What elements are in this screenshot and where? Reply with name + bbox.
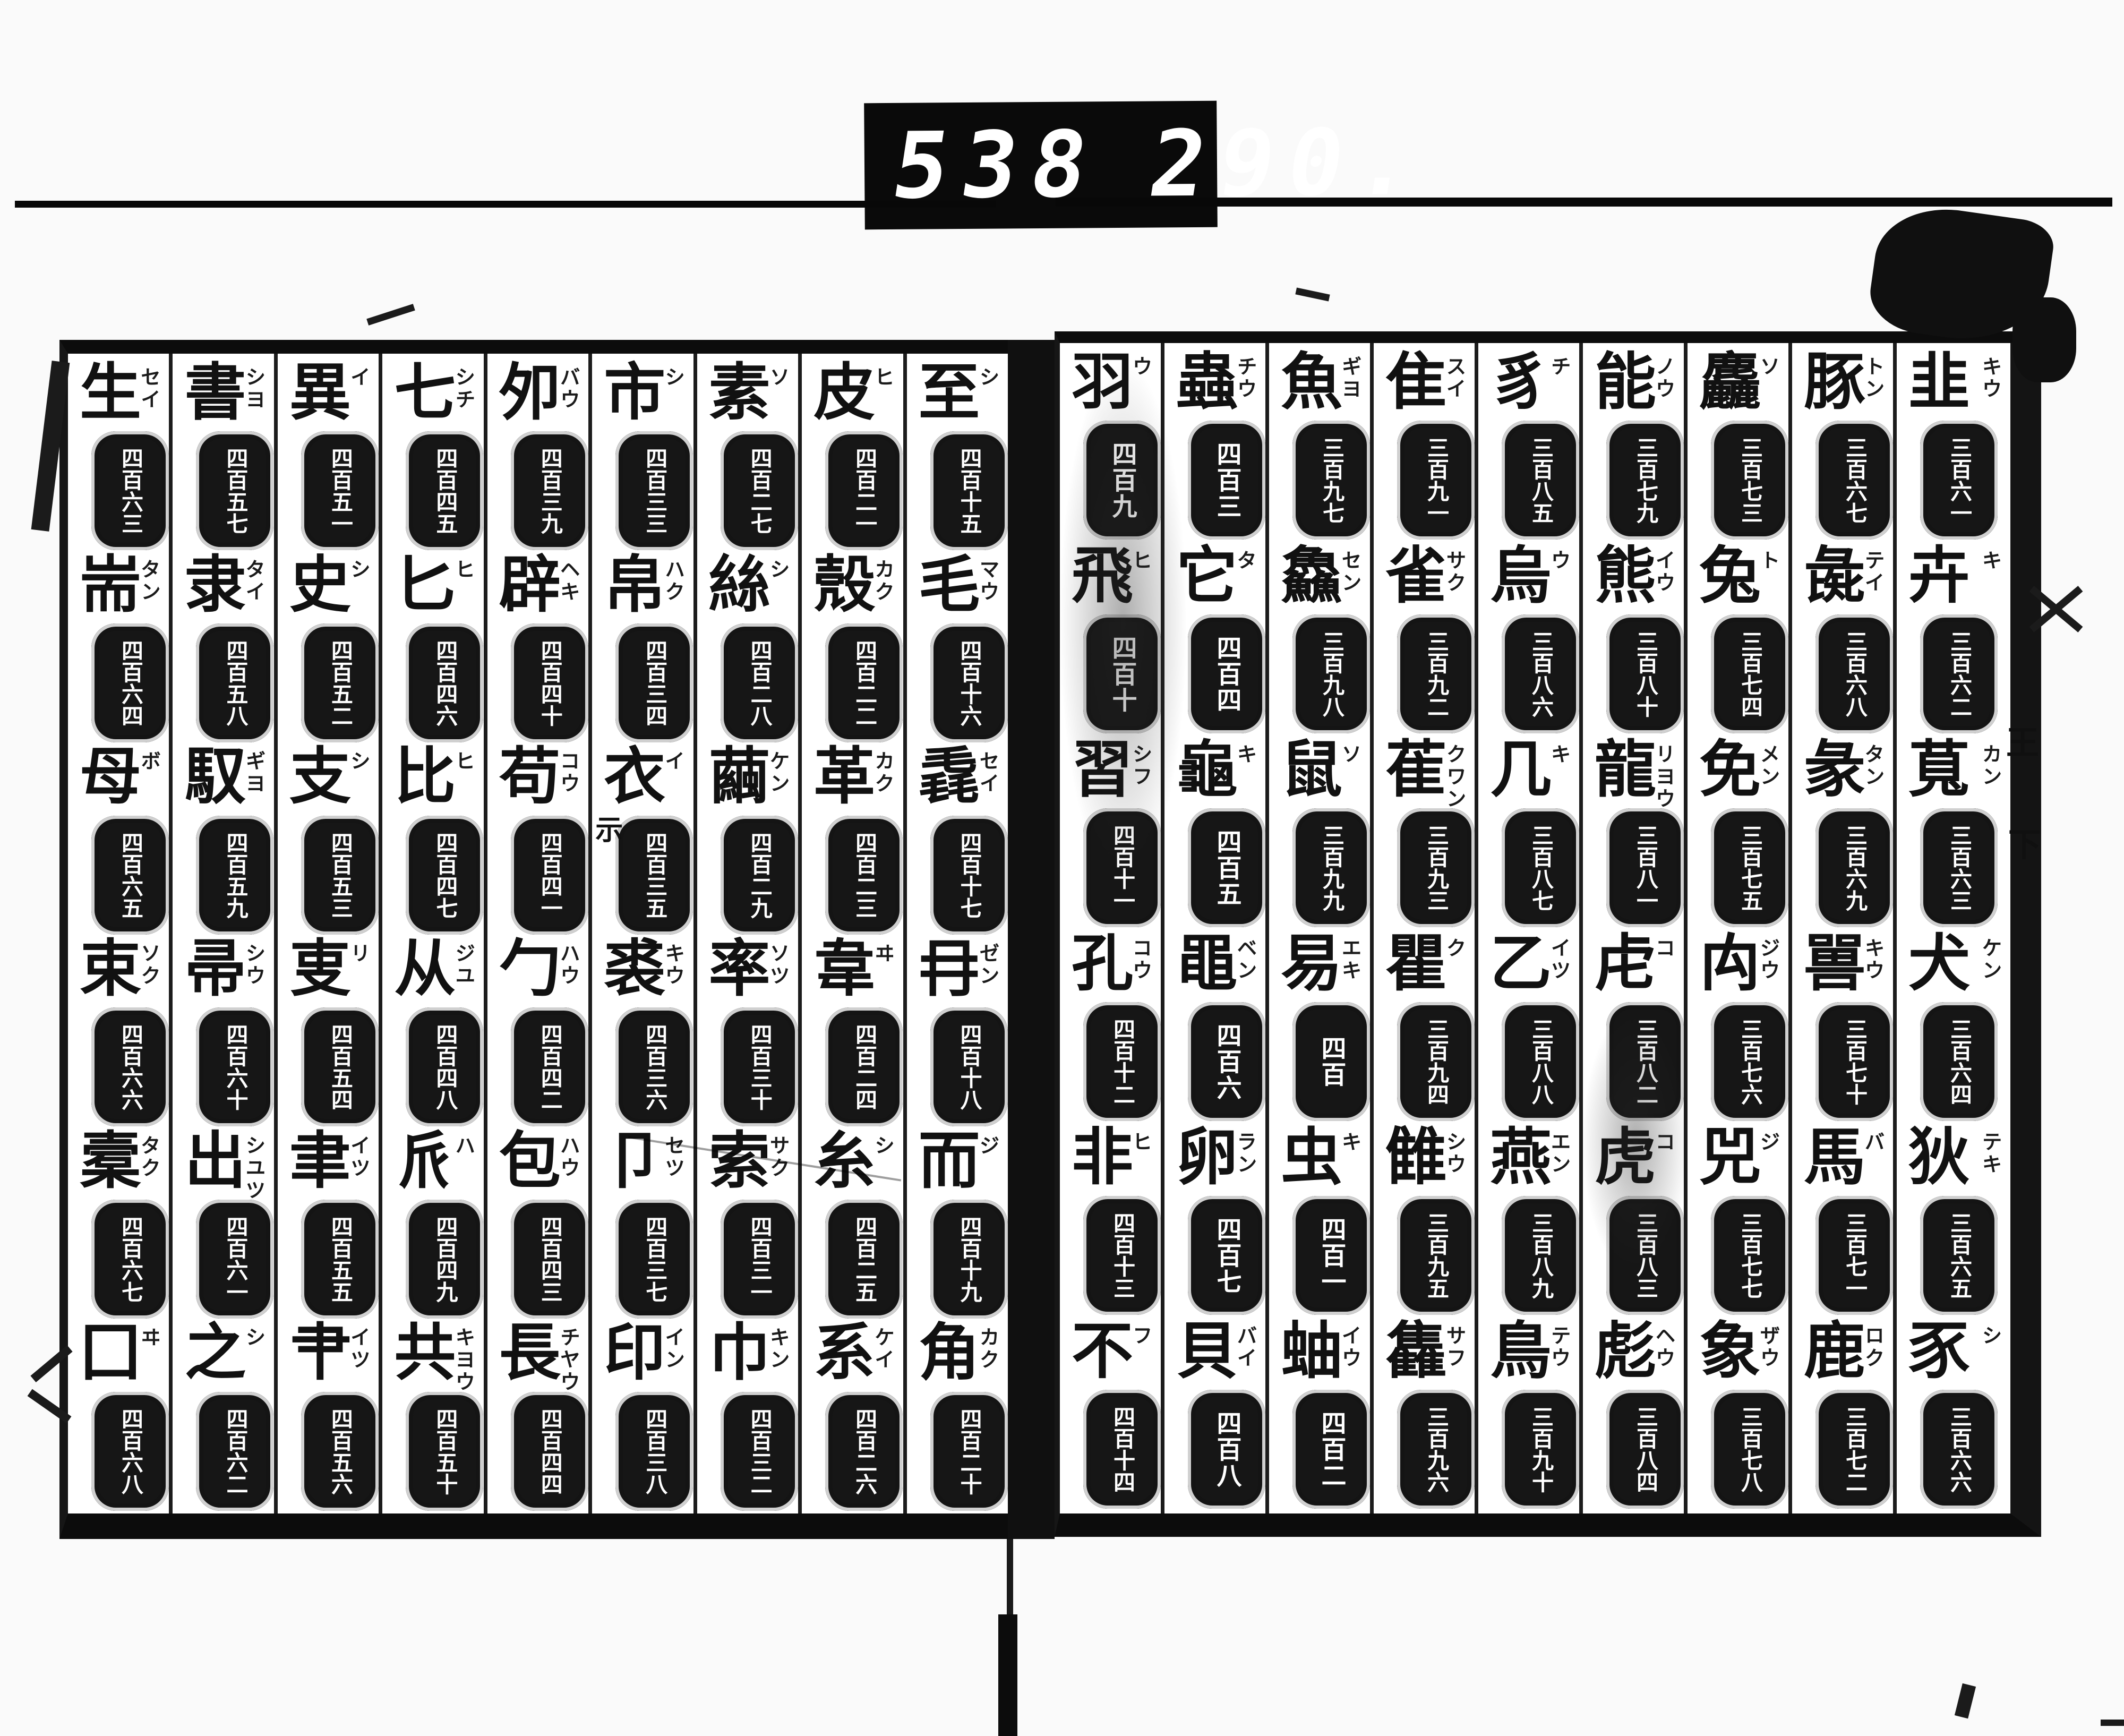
reading-kana: タ — [1231, 550, 1260, 572]
page-number: 四百二六 — [853, 1408, 875, 1495]
reading-kana: サフ — [1440, 1325, 1469, 1370]
index-entry: 聿イツ四百五五 — [278, 1130, 379, 1322]
reading-kana: リヨウ — [1649, 743, 1678, 810]
radical-glyph: 苟 — [499, 745, 561, 808]
page-number: 四百二二 — [853, 639, 875, 726]
page-number-seal: 四百十八 — [930, 1007, 1008, 1126]
page-number: 四百三一 — [748, 1216, 770, 1303]
reading-kana: ソ — [764, 366, 793, 389]
page-number-seal: 四百二四 — [825, 1007, 903, 1126]
radical-glyph: 易 — [1281, 932, 1342, 995]
radical-glyph: 夘 — [499, 361, 561, 424]
page-number: 四百四十 — [538, 639, 560, 726]
radical-glyph: 兔 — [1699, 544, 1761, 607]
radical-glyph: 史 — [289, 553, 351, 616]
page-number: 三百九四 — [1425, 1018, 1447, 1105]
reading-kana: ハウ — [554, 1135, 583, 1179]
index-entry: 蚰イウ四百二 — [1269, 1320, 1370, 1513]
radical-glyph: 麤 — [1699, 350, 1761, 413]
reading-kana: ソツ — [764, 943, 793, 987]
page-number: 四百四七 — [434, 832, 456, 919]
page-number: 四百五 — [1214, 829, 1239, 907]
radical-glyph: 韭 — [1908, 350, 1970, 413]
index-entry: 几キ三百八七 — [1478, 738, 1579, 932]
scan-stain-gutter — [1059, 361, 1187, 882]
radical-glyph: 馬 — [1804, 1126, 1865, 1188]
radical-glyph: 隹 — [1385, 350, 1447, 413]
radical-glyph: 共 — [394, 1321, 456, 1384]
radical-glyph: 象 — [1699, 1320, 1761, 1382]
index-entry: 卵ラン四百七 — [1164, 1126, 1265, 1320]
index-column: 夘バウ四百三九辟ヘキ四百四十苟コウ四百四一勹ハウ四百四二包ハウ四百四三長チヤウ四… — [487, 354, 592, 1513]
page-number-seal: 四百六六 — [91, 1007, 169, 1126]
page-number: 四百五九 — [224, 832, 246, 919]
page-number: 四百三 — [1214, 441, 1239, 519]
index-entry: 魚ギヨ三百九七 — [1269, 350, 1370, 544]
page-number: 三百九八 — [1321, 630, 1342, 717]
page-number: 三百八七 — [1530, 824, 1552, 911]
radical-glyph: 支 — [289, 745, 351, 808]
page-number-seal: 四百六三 — [91, 431, 169, 550]
page-number-seal: 四百二六 — [825, 1392, 903, 1511]
reading-kana: キヨウ — [449, 1327, 478, 1393]
page-number: 四百四一 — [538, 832, 560, 919]
index-entry: 鱻セン三百九八 — [1269, 544, 1370, 738]
page-number-seal: 三百六二 — [1920, 614, 1998, 733]
page-number-seal: 四百二十 — [930, 1392, 1008, 1511]
radical-glyph: 鱻 — [1281, 544, 1342, 607]
index-entry: 毳セイ四百十七 — [907, 745, 1008, 937]
reading-kana: ヘウ — [1649, 1325, 1678, 1370]
page-number: 四百三七 — [644, 1216, 665, 1303]
page-number-seal: 四百二九 — [721, 816, 798, 935]
reading-kana: キ — [1976, 550, 2005, 572]
reading-kana: ケン — [1976, 937, 2005, 982]
index-entry: 苟コウ四百四一 — [487, 745, 588, 937]
page-number-seal: 四百四八 — [406, 1007, 483, 1126]
scan-stain-mid — [1582, 1009, 1689, 1275]
radical-glyph: 母 — [80, 745, 141, 808]
index-column: 生セイ四百六三耑タン四百六四母ボ四百六五束ソク四百六六槖タク四百六七囗ヰ四百六八 — [68, 354, 173, 1513]
page-number-seal: 三百七五 — [1711, 808, 1788, 927]
reading-kana: ケン — [764, 750, 793, 795]
page-number: 四百二三 — [853, 832, 875, 919]
page-number: 四百五一 — [329, 447, 350, 534]
index-entry: 書シヨ四百五七 — [173, 361, 273, 553]
reading-kana: サク — [764, 1135, 793, 1179]
page-number-seal: 四百七 — [1188, 1196, 1265, 1315]
index-entry: 隹スイ三百九一 — [1374, 350, 1475, 544]
page-number-seal: 四百二七 — [721, 431, 798, 550]
reading-kana: シウ — [239, 943, 269, 987]
reading-kana: バウ — [554, 366, 583, 411]
radical-glyph: 几 — [1490, 738, 1552, 801]
reading-kana: ヰ — [134, 1327, 164, 1349]
index-entry: 毛マウ四百十六 — [907, 553, 1008, 746]
page-number: 四百二五 — [853, 1216, 875, 1303]
reading-kana: ギヨ — [239, 750, 269, 795]
index-entry: 彘テイ三百六八 — [1792, 544, 1893, 738]
index-entry: 乙イツ三百八八 — [1478, 932, 1579, 1126]
reading-kana: ハク — [659, 559, 688, 603]
bottom-right-mark — [1955, 1683, 1976, 1718]
page-number: 四百三五 — [644, 832, 665, 919]
reading-kana: イツ — [1545, 937, 1574, 982]
index-entry: 鹿ロク三百七二 — [1792, 1320, 1893, 1513]
page-number-seal: 四百八 — [1188, 1390, 1265, 1509]
reading-kana: タン — [134, 559, 164, 603]
index-entry: 从ジユ四百四八 — [382, 937, 483, 1130]
reading-kana: カク — [973, 1327, 1003, 1371]
left-page: 生セイ四百六三耑タン四百六四母ボ四百六五束ソク四百六六槖タク四百六七囗ヰ四百六八… — [59, 340, 1008, 1539]
index-entry: 耑タン四百六四 — [68, 553, 169, 746]
index-entry: 肀イツ四百五六 — [278, 1321, 379, 1513]
index-entry: 索サク四百三一 — [697, 1130, 798, 1322]
index-entry: 卩セツ四百三七 — [592, 1130, 693, 1322]
index-entry: 至シ四百十五 — [907, 361, 1008, 553]
page-number: 四百六八 — [119, 1408, 141, 1495]
page-number: 三百九一 — [1425, 437, 1447, 524]
page-number-seal: 四百三二 — [721, 1392, 798, 1511]
index-entry: 冄ゼン四百十八 — [907, 937, 1008, 1130]
index-entry: 雀サク三百九二 — [1374, 544, 1475, 738]
reading-kana: カク — [869, 750, 898, 795]
page-number-seal: 四百二八 — [721, 623, 798, 742]
index-entry: 馬バ三百七一 — [1792, 1126, 1893, 1320]
radical-glyph: 絲 — [709, 553, 770, 616]
page-number-seal: 四百十七 — [930, 816, 1008, 935]
index-entry: 孔コウ四百十二 — [1060, 932, 1161, 1126]
radical-glyph: 毛 — [919, 553, 980, 616]
page-number-seal: 三百七十 — [1815, 1002, 1893, 1121]
reading-kana: イ — [659, 750, 688, 773]
reading-kana: ト — [1754, 550, 1783, 572]
index-entry: 能ノウ三百七九 — [1583, 350, 1684, 544]
reading-kana: ラン — [1231, 1131, 1260, 1176]
radical-glyph: 鹿 — [1804, 1320, 1865, 1382]
index-entry: 史シ四百五二 — [278, 553, 379, 746]
page-number-seal: 三百九五 — [1397, 1196, 1475, 1315]
reading-kana: コウ — [1126, 937, 1155, 982]
reading-kana: ボ — [134, 750, 164, 773]
radical-glyph: 至 — [919, 361, 980, 424]
page-number: 三百七十 — [1844, 1018, 1865, 1105]
index-column: 至シ四百十五毛マウ四百十六毳セイ四百十七冄ゼン四百十八而ジ四百十九角カク四百二十 — [907, 354, 1008, 1513]
index-entry: 禸ジウ三百七六 — [1688, 932, 1788, 1126]
index-entry: 系ケイ四百二六 — [802, 1321, 903, 1513]
ink-blotch-corner — [2012, 297, 2076, 382]
reading-kana: キ — [1231, 743, 1260, 766]
page-number: 四百五七 — [224, 447, 246, 534]
folio-mark-upper: 王 — [2006, 716, 2039, 764]
page-number-seal: 四百二一 — [825, 431, 903, 550]
radical-glyph: 魚 — [1281, 350, 1342, 413]
index-entry: 支シ四百五三 — [278, 745, 379, 937]
page-number-seal: 四百十九 — [930, 1200, 1008, 1319]
radical-glyph: 狄 — [1908, 1126, 1970, 1188]
index-entry: 麤ソ三百七三 — [1688, 350, 1788, 544]
radical-glyph: 囗 — [80, 1321, 141, 1384]
index-entry: 龍リヨウ三百八一 — [1583, 738, 1684, 932]
page-number: 四百四 — [1214, 635, 1239, 713]
index-entry: 彖タン三百六九 — [1792, 738, 1893, 932]
page-number-seal: 四百三四 — [615, 623, 693, 742]
reading-kana: ヒ — [449, 559, 478, 581]
reading-kana: シ — [344, 750, 373, 773]
radical-glyph: 豚 — [1804, 350, 1865, 413]
reading-kana: ゼン — [973, 943, 1003, 987]
radical-glyph: 角 — [919, 1321, 980, 1384]
index-entry: 彪ヘウ三百八四 — [1583, 1320, 1684, 1513]
index-entry: 韋ヰ四百二四 — [802, 937, 903, 1130]
page-number-seal: 三百八五 — [1502, 421, 1579, 540]
page-number-seal: 四百五七 — [196, 431, 273, 550]
page-number: 四百十八 — [958, 1023, 980, 1110]
index-entry: 印イン四百三八 — [592, 1321, 693, 1513]
page-number: 四百六三 — [119, 447, 141, 534]
radical-glyph: 繭 — [709, 745, 770, 808]
reading-kana: シ — [659, 366, 688, 389]
page-number: 三百八五 — [1530, 437, 1552, 524]
radical-subglyph: 示 — [595, 808, 623, 848]
page-number-seal: 三百六五 — [1920, 1196, 1998, 1315]
page-number: 四百二八 — [748, 639, 770, 726]
reading-kana: ソ — [1335, 743, 1365, 766]
page-number: 三百七九 — [1634, 437, 1656, 524]
radical-glyph: 熊 — [1595, 544, 1656, 607]
radical-glyph: 豕 — [1908, 1320, 1970, 1382]
page-number: 四百三八 — [644, 1408, 665, 1495]
page-number-seal: 四百五 — [1188, 808, 1265, 927]
radical-glyph: 孔 — [1072, 932, 1133, 995]
page-number: 四百七 — [1214, 1217, 1239, 1295]
index-entry: 異イ四百五一 — [278, 361, 379, 553]
index-entry: 囗ヰ四百六八 — [68, 1321, 169, 1513]
radical-glyph: 七 — [394, 361, 456, 424]
page-number: 四百八 — [1214, 1410, 1239, 1489]
index-entry: 辟ヘキ四百四十 — [487, 553, 588, 746]
radical-glyph: 能 — [1595, 350, 1656, 413]
reading-kana: バ — [1858, 1131, 1888, 1153]
reading-kana: イウ — [1335, 1325, 1365, 1370]
index-entry: 雔シウ三百九五 — [1374, 1126, 1475, 1320]
index-column: 豸チ三百八五烏ウ三百八六几キ三百八七乙イツ三百八八燕エン三百八九鳥テウ三百九十 — [1478, 343, 1583, 1513]
radical-glyph: 卉 — [1908, 544, 1970, 607]
reading-kana: シ — [973, 366, 1003, 389]
page-number-seal: 四百六八 — [91, 1392, 169, 1511]
radical-glyph: 束 — [80, 937, 141, 1000]
radical-glyph: 萈 — [1908, 738, 1970, 801]
page-number-seal: 四百四十 — [511, 623, 588, 742]
page-number-seal: 四百三六 — [615, 1007, 693, 1126]
page-number-seal: 四百四一 — [511, 816, 588, 935]
index-entry: 兕ジ三百七七 — [1688, 1126, 1788, 1320]
reading-kana: リ — [344, 943, 373, 965]
page-number: 四百四六 — [434, 639, 456, 726]
index-entry: 革カク四百二三 — [802, 745, 903, 937]
page-number-seal: 四百二 — [1292, 1390, 1370, 1509]
page-number-seal: 四百三一 — [721, 1200, 798, 1319]
page-number: 三百八六 — [1530, 630, 1552, 717]
reading-kana: シ — [1976, 1325, 2005, 1347]
index-column: 能ノウ三百七九熊イウ三百八十龍リヨウ三百八一虍コ三百八二虎コ三百八三彪ヘウ三百八… — [1583, 343, 1688, 1513]
reading-kana: バイ — [1231, 1325, 1260, 1370]
reading-kana: ヒ — [869, 366, 898, 389]
index-entry: 長チヤウ四百四四 — [487, 1321, 588, 1513]
index-entry: 萑クワン三百九三 — [1374, 738, 1475, 932]
index-column: 市シ四百三三帛ハク四百三四衣示イ四百三五裘キウ四百三六卩セツ四百三七印イン四百三… — [592, 354, 697, 1513]
page-number-seal: 四百四五 — [406, 431, 483, 550]
page-number: 三百九三 — [1425, 824, 1447, 911]
index-entry: 象ザウ三百七八 — [1688, 1320, 1788, 1513]
radical-glyph: 率 — [709, 937, 770, 1000]
index-entry: 犬ケン三百六四 — [1897, 932, 2010, 1126]
reading-kana: ヒ — [449, 750, 478, 773]
page-number: 四百五十 — [434, 1408, 456, 1495]
radical-glyph: 韋 — [813, 937, 875, 1000]
index-column: 韭キウ三百六一卉キ三百六二萈カン三百六三犬ケン三百六四狄テキ三百六五豕シ三百六六 — [1897, 343, 2010, 1513]
radical-glyph: 市 — [604, 361, 665, 424]
page-number: 四百六七 — [119, 1216, 141, 1303]
page-number-seal: 四百二二 — [825, 623, 903, 742]
page-number-seal: 四百六五 — [91, 816, 169, 935]
page-number-seal: 四百四 — [1188, 614, 1265, 733]
page-number: 三百九七 — [1321, 437, 1342, 524]
page-number-seal: 四百四三 — [511, 1200, 588, 1319]
page-number: 四百 — [1319, 1036, 1344, 1088]
page-number: 三百七七 — [1739, 1212, 1761, 1299]
right-page: 羽ウ四百九飛ヒ四百十習シフ四百十一孔コウ四百十二非ヒ四百十三不フ四百十四蟲チウ四… — [1055, 331, 2041, 1537]
reading-kana: セイ — [134, 366, 164, 411]
reading-kana: キウ — [659, 943, 688, 987]
index-entry: 裘キウ四百三六 — [592, 937, 693, 1130]
radical-glyph: 書 — [184, 361, 246, 424]
reading-kana: キウ — [1976, 356, 2005, 400]
page-number-seal: 三百八一 — [1606, 808, 1684, 927]
index-entry: 韭キウ三百六一 — [1897, 350, 2010, 544]
page-number-seal: 四百六十 — [196, 1007, 273, 1126]
reading-kana: エン — [1545, 1131, 1574, 1176]
index-entry: 皮ヒ四百二一 — [802, 361, 903, 553]
reading-kana: イツ — [344, 1135, 373, 1179]
page-number-seal: 四百五十 — [406, 1392, 483, 1511]
page-number: 四百六二 — [224, 1408, 246, 1495]
index-entry: 市シ四百三三 — [592, 361, 693, 553]
page-number-seal: 三百九八 — [1292, 614, 1370, 733]
reading-kana: トン — [1858, 356, 1888, 400]
fold-mark — [998, 1614, 1017, 1736]
radical-glyph: 雔 — [1385, 1126, 1447, 1188]
index-entry: 糸シ四百二五 — [802, 1130, 903, 1322]
index-entry: 之シ四百六二 — [173, 1321, 273, 1513]
reading-kana: タク — [134, 1135, 164, 1179]
page-number-seal: 三百七二 — [1815, 1390, 1893, 1509]
index-entry: 七シチ四百四五 — [382, 361, 483, 553]
index-entry: 叓リ四百五四 — [278, 937, 379, 1130]
page-number-seal: 四百六二 — [196, 1392, 273, 1511]
reading-kana: シヨ — [239, 366, 269, 411]
radical-glyph: 兕 — [1699, 1126, 1761, 1188]
page-number-seal: 四百五六 — [301, 1392, 379, 1511]
page-number: 四百二九 — [748, 832, 770, 919]
index-entry: 母ボ四百六五 — [68, 745, 169, 937]
index-entry: 鳥テウ三百九十 — [1478, 1320, 1579, 1513]
page-number: 四百三四 — [644, 639, 665, 726]
index-entry: 夘バウ四百三九 — [487, 361, 588, 553]
index-entry: 雥サフ三百九六 — [1374, 1320, 1475, 1513]
page-number-seal: 四百十三 — [1083, 1196, 1161, 1315]
reading-kana: キ — [1335, 1131, 1365, 1153]
page-number: 三百八九 — [1530, 1212, 1552, 1299]
page-number-seal: 四百五一 — [301, 431, 379, 550]
reading-kana: キウ — [1858, 937, 1888, 982]
page-number-seal: 四百五五 — [301, 1200, 379, 1319]
page-number: 三百七四 — [1739, 630, 1761, 717]
page-number: 四百三六 — [644, 1023, 665, 1110]
page-number: 四百三二 — [748, 1408, 770, 1495]
radical-glyph: 匕 — [394, 553, 456, 616]
page-number: 四百十二 — [1111, 1018, 1133, 1105]
radical-glyph: 雀 — [1385, 544, 1447, 607]
radical-glyph: 彪 — [1595, 1320, 1656, 1382]
reading-kana: テウ — [1545, 1325, 1574, 1370]
radical-glyph: 蚰 — [1281, 1320, 1342, 1382]
reading-kana: シ — [239, 1327, 269, 1349]
reading-kana: エキ — [1335, 937, 1365, 982]
reading-kana: チウ — [1231, 356, 1260, 400]
page-number-seal: 三百八六 — [1502, 614, 1579, 733]
reading-kana: ソ — [1754, 356, 1783, 378]
index-entry: 熊イウ三百八十 — [1583, 544, 1684, 738]
radical-glyph: 卵 — [1176, 1126, 1238, 1188]
index-entry: 烏ウ三百八六 — [1478, 544, 1579, 738]
index-entry: 豕シ三百六六 — [1897, 1320, 2010, 1513]
frame-counter-label: 538 290. — [864, 101, 1218, 230]
index-column: 皮ヒ四百二一殼カク四百二二革カク四百二三韋ヰ四百二四糸シ四百二五系ケイ四百二六 — [802, 354, 906, 1513]
reading-kana: ハ — [449, 1135, 478, 1157]
reading-kana: コ — [1649, 937, 1678, 960]
radical-glyph: 裘 — [604, 937, 665, 1000]
index-entry: 勹ハウ四百四二 — [487, 937, 588, 1130]
reading-kana: ケイ — [869, 1327, 898, 1371]
radical-glyph: 巾 — [709, 1321, 770, 1384]
page-number-seal: 四百三九 — [511, 431, 588, 550]
reading-kana: テイ — [1858, 550, 1888, 594]
page-number: 三百六三 — [1948, 824, 1970, 911]
reading-kana: クワン — [1440, 743, 1469, 810]
radical-glyph: 嘼 — [1804, 932, 1865, 995]
reading-kana: ヒ — [1126, 1131, 1155, 1153]
index-entry: 槖タク四百六七 — [68, 1130, 169, 1322]
page-number-seal: 四百六七 — [91, 1200, 169, 1319]
index-entry: 易エキ四百 — [1269, 932, 1370, 1126]
page-number: 三百九十 — [1530, 1406, 1552, 1493]
index-entry: 鼠ソ三百九九 — [1269, 738, 1370, 932]
radical-glyph: 瞿 — [1385, 932, 1447, 995]
page-number: 四百十六 — [958, 639, 980, 726]
reading-kana: ギヨ — [1335, 356, 1365, 400]
radical-glyph: 虫 — [1281, 1126, 1342, 1188]
radical-glyph: 燕 — [1490, 1126, 1552, 1188]
page-number: 四百六五 — [119, 832, 141, 919]
page-number: 三百六九 — [1844, 824, 1865, 911]
index-entry: 共キヨウ四百五十 — [382, 1321, 483, 1513]
page-number-seal: 四百三八 — [615, 1392, 693, 1511]
reading-kana: イン — [659, 1327, 688, 1371]
radical-glyph: 殼 — [813, 553, 875, 616]
radical-glyph: 帚 — [184, 937, 246, 1000]
page-number: 三百六二 — [1948, 630, 1970, 717]
